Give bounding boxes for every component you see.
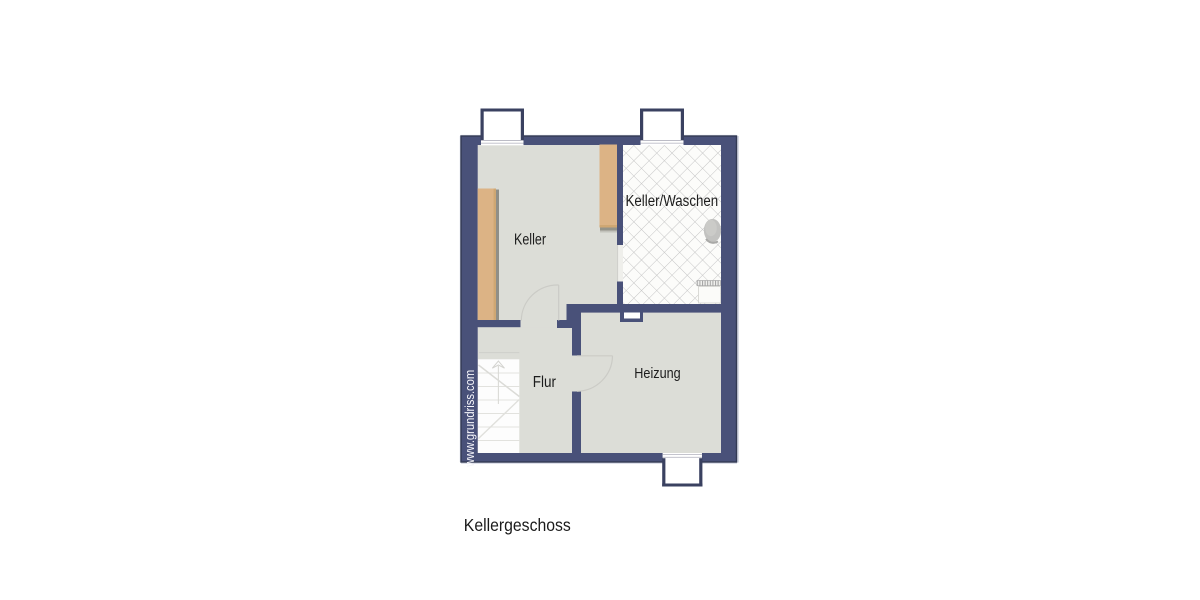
svg-text:Keller: Keller bbox=[514, 231, 546, 248]
svg-text:Flur: Flur bbox=[533, 374, 556, 391]
svg-text:Heizung: Heizung bbox=[634, 365, 680, 382]
svg-text:www.grundriss.com: www.grundriss.com bbox=[463, 370, 477, 468]
svg-text:Kellergeschoss: Kellergeschoss bbox=[464, 515, 571, 535]
svg-text:Keller/Waschen: Keller/Waschen bbox=[626, 193, 719, 210]
